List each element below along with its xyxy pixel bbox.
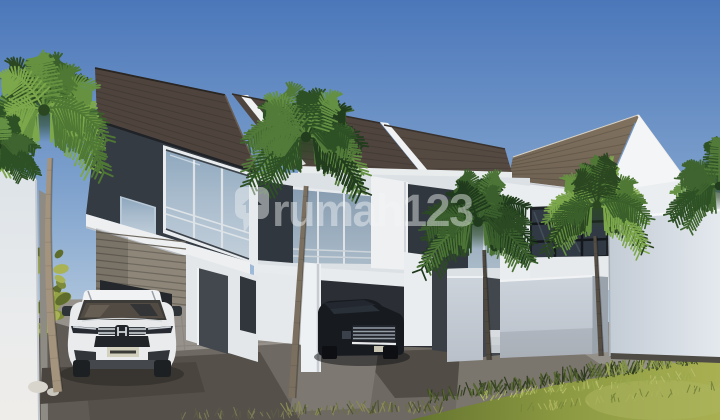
svg-text:rumah123: rumah123 (272, 185, 473, 236)
